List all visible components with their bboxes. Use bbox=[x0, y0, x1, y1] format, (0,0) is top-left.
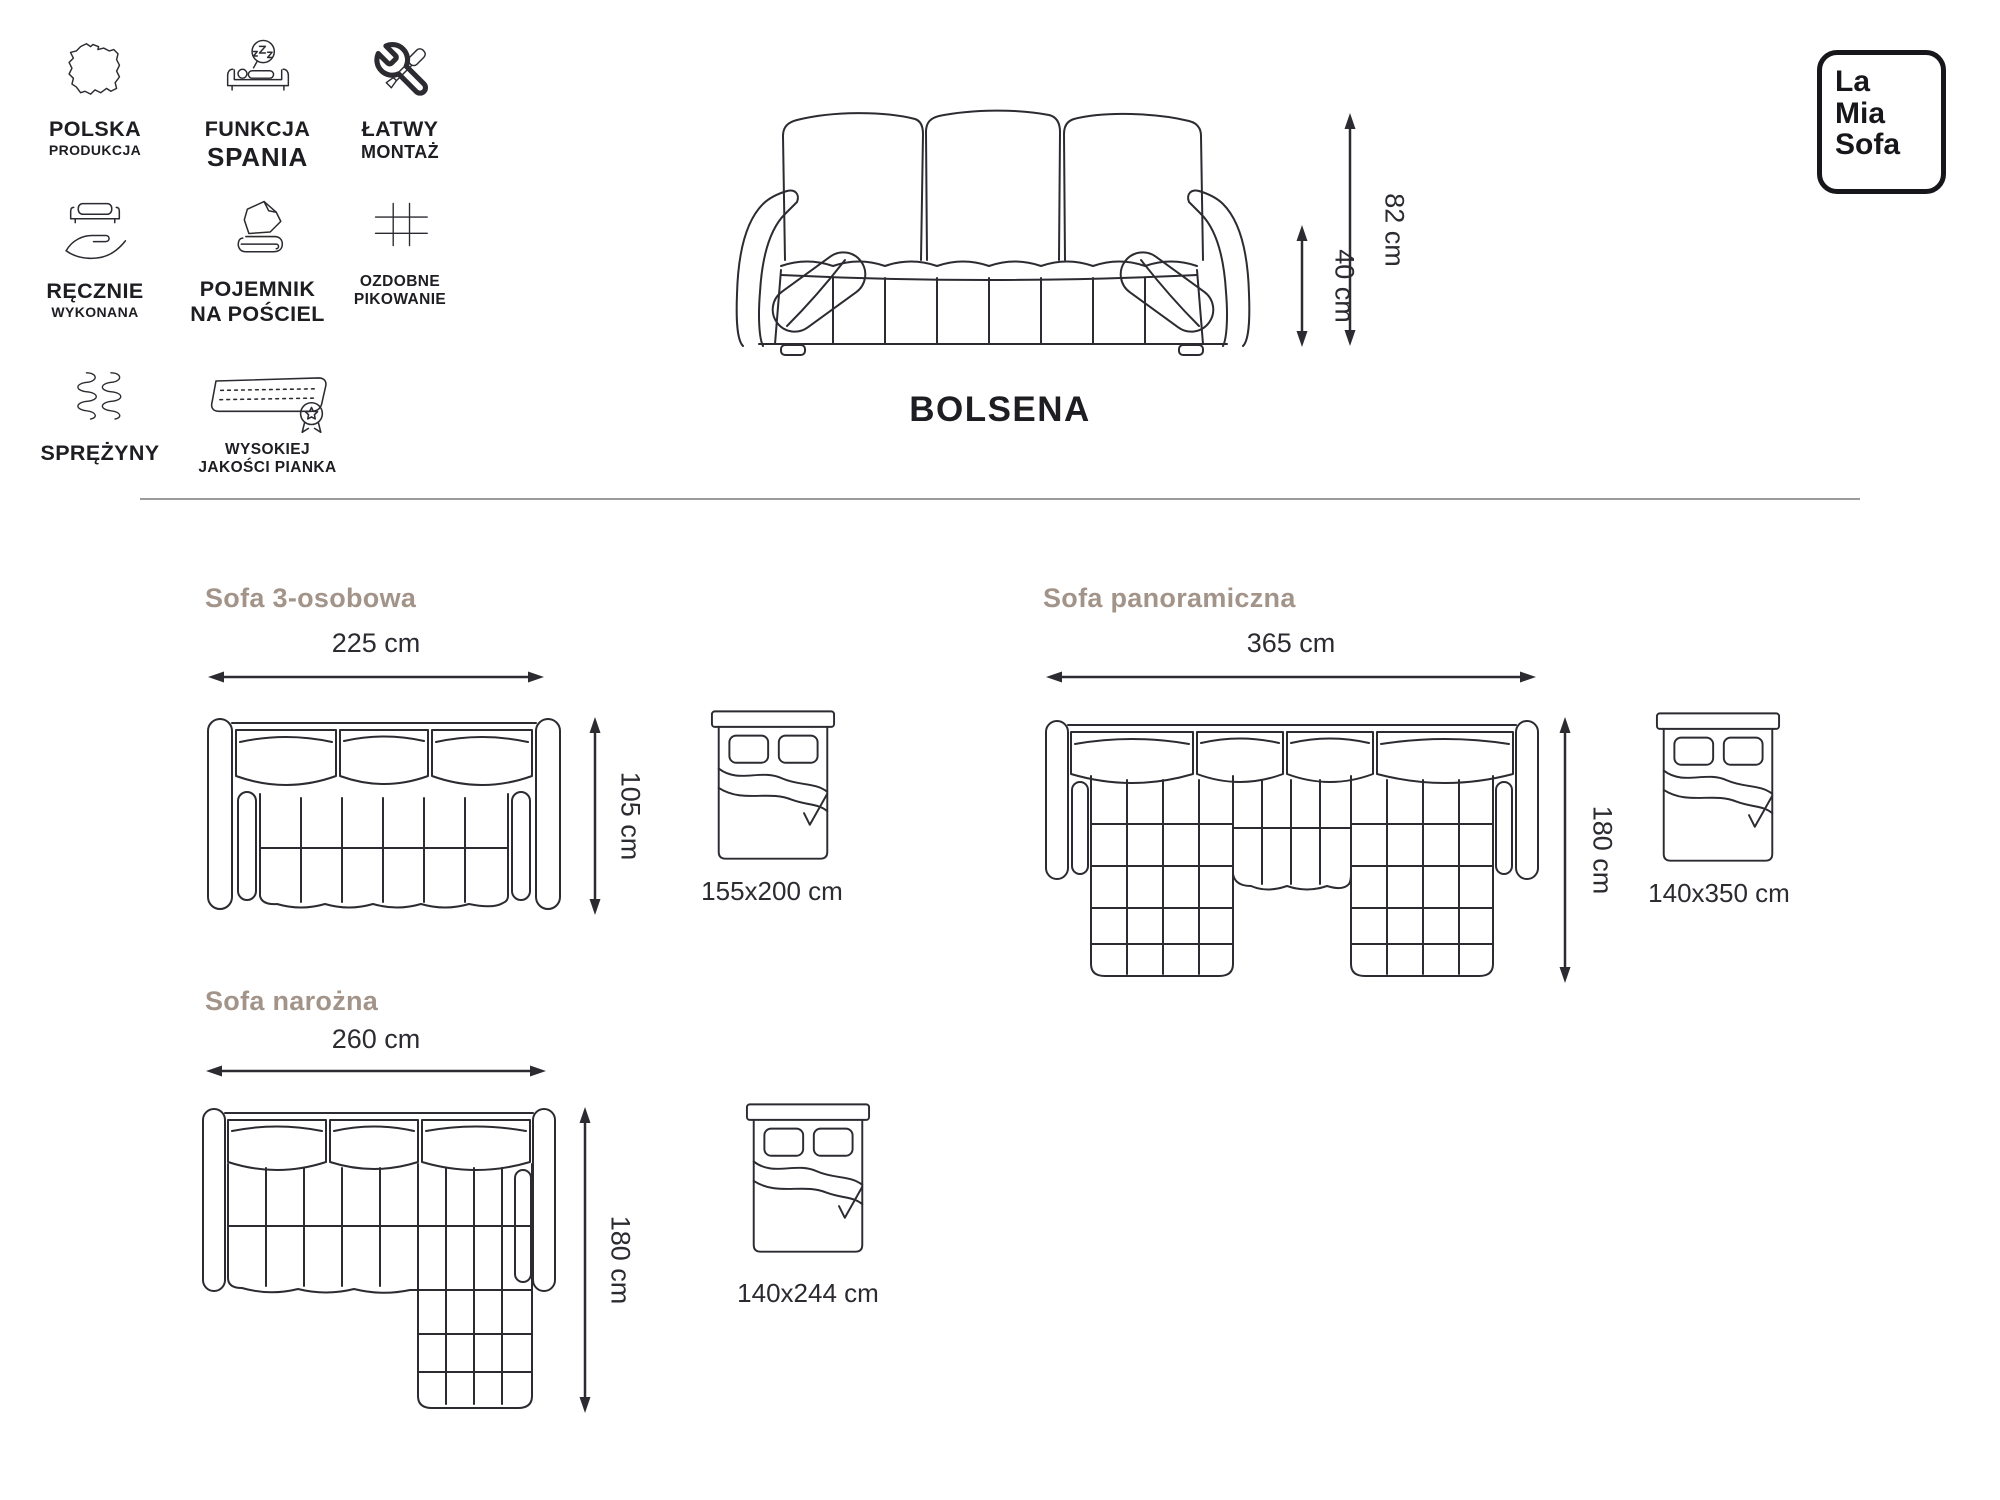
height-dimension-label: 82 cm bbox=[1379, 193, 1410, 267]
foam-quality-icon bbox=[202, 370, 334, 434]
seat-height-dimension-arrow bbox=[1293, 224, 1311, 348]
feature-ozdobne-pikowanie: OZDOBNE PIKOWANIE bbox=[330, 198, 470, 310]
product-spec-sheet: POLSKA PRODUKCJA FUNKCJA SPANIA bbox=[0, 0, 2000, 1500]
poland-map-icon bbox=[57, 38, 133, 110]
feature-label: WYSOKIEJ bbox=[180, 441, 355, 459]
la-mia-sofa-logo: La Mia Sofa bbox=[1817, 50, 1946, 194]
feature-sublabel: PRODUKCJA bbox=[20, 142, 170, 159]
feature-sublabel: PIKOWANIE bbox=[330, 291, 470, 309]
variant-width-label: 260 cm bbox=[332, 1024, 421, 1055]
quilting-icon bbox=[364, 198, 436, 266]
feature-sublabel: SPANIA bbox=[180, 142, 335, 173]
feature-label: POJEMNIK bbox=[180, 277, 335, 302]
bed-size-label: 140x244 cm bbox=[737, 1278, 879, 1309]
sofa-top-view-corner bbox=[200, 1104, 558, 1416]
variant-title-panoramiczna: Sofa panoramiczna bbox=[1043, 583, 1296, 614]
variant-depth-label: 105 cm bbox=[615, 772, 646, 861]
feature-label: FUNKCJA bbox=[180, 117, 335, 142]
logo-line: La bbox=[1835, 66, 1941, 98]
section-divider bbox=[140, 498, 1860, 500]
logo-line: Sofa bbox=[1835, 129, 1941, 161]
feature-polska-produkcja: POLSKA PRODUKCJA bbox=[20, 38, 170, 159]
easy-assembly-icon bbox=[363, 38, 437, 110]
feature-sublabel: NA POŚCIEL bbox=[180, 302, 335, 327]
variant-depth-label: 180 cm bbox=[1587, 806, 1618, 895]
variant-depth-label: 180 cm bbox=[605, 1216, 636, 1305]
feature-latwy-montaz: ŁATWY MONTAŻ bbox=[330, 38, 470, 164]
bed-size-icon bbox=[745, 1101, 871, 1257]
sleep-function-icon bbox=[218, 36, 298, 110]
feature-label: RĘCZNIE bbox=[20, 279, 170, 304]
bed-size-icon bbox=[710, 708, 836, 864]
feature-sublabel: MONTAŻ bbox=[330, 142, 470, 163]
feature-wysokiej-jakosci-pianka: WYSOKIEJ JAKOŚCI PIANKA bbox=[180, 370, 355, 478]
feature-label: OZDOBNE bbox=[330, 273, 470, 291]
sofa-top-view-3-seater bbox=[205, 714, 563, 914]
feature-recznie-wykonana: RĘCZNIE WYKONANA bbox=[20, 196, 170, 321]
seat-height-dimension-label: 40 cm bbox=[1329, 249, 1360, 323]
sofa-top-view-panoramic bbox=[1043, 716, 1541, 984]
sofa-front-drawing bbox=[723, 88, 1263, 358]
logo-line: Mia bbox=[1835, 98, 1941, 130]
depth-dimension-arrow bbox=[1556, 716, 1574, 984]
feature-funkcja-spania: FUNKCJA SPANIA bbox=[180, 36, 335, 173]
depth-dimension-arrow bbox=[586, 716, 604, 916]
feature-label: ŁATWY bbox=[330, 117, 470, 142]
variant-title-narozna: Sofa narożna bbox=[205, 986, 378, 1017]
variant-width-label: 225 cm bbox=[332, 628, 421, 659]
feature-sprezyny: SPRĘŻYNY bbox=[20, 366, 180, 466]
depth-dimension-arrow bbox=[576, 1106, 594, 1414]
variant-title-3-osobowa: Sofa 3-osobowa bbox=[205, 583, 416, 614]
feature-label: POLSKA bbox=[20, 117, 170, 142]
springs-icon bbox=[61, 366, 139, 434]
variant-width-label: 365 cm bbox=[1247, 628, 1336, 659]
width-dimension-arrow bbox=[205, 1062, 547, 1080]
bed-size-label: 155x200 cm bbox=[701, 876, 843, 907]
feature-pojemnik-na-posciel: POJEMNIK NA POŚCIEL bbox=[180, 194, 335, 328]
width-dimension-arrow bbox=[1045, 668, 1537, 686]
bed-size-icon bbox=[1655, 710, 1781, 866]
handmade-icon bbox=[55, 196, 135, 272]
feature-label: SPRĘŻYNY bbox=[20, 441, 180, 466]
width-dimension-arrow bbox=[207, 668, 545, 686]
feature-sublabel: WYKONANA bbox=[20, 304, 170, 321]
bedding-storage-icon bbox=[219, 194, 297, 270]
feature-sublabel: JAKOŚCI PIANKA bbox=[180, 459, 355, 477]
bed-size-label: 140x350 cm bbox=[1648, 878, 1790, 909]
model-name: BOLSENA bbox=[909, 390, 1091, 430]
